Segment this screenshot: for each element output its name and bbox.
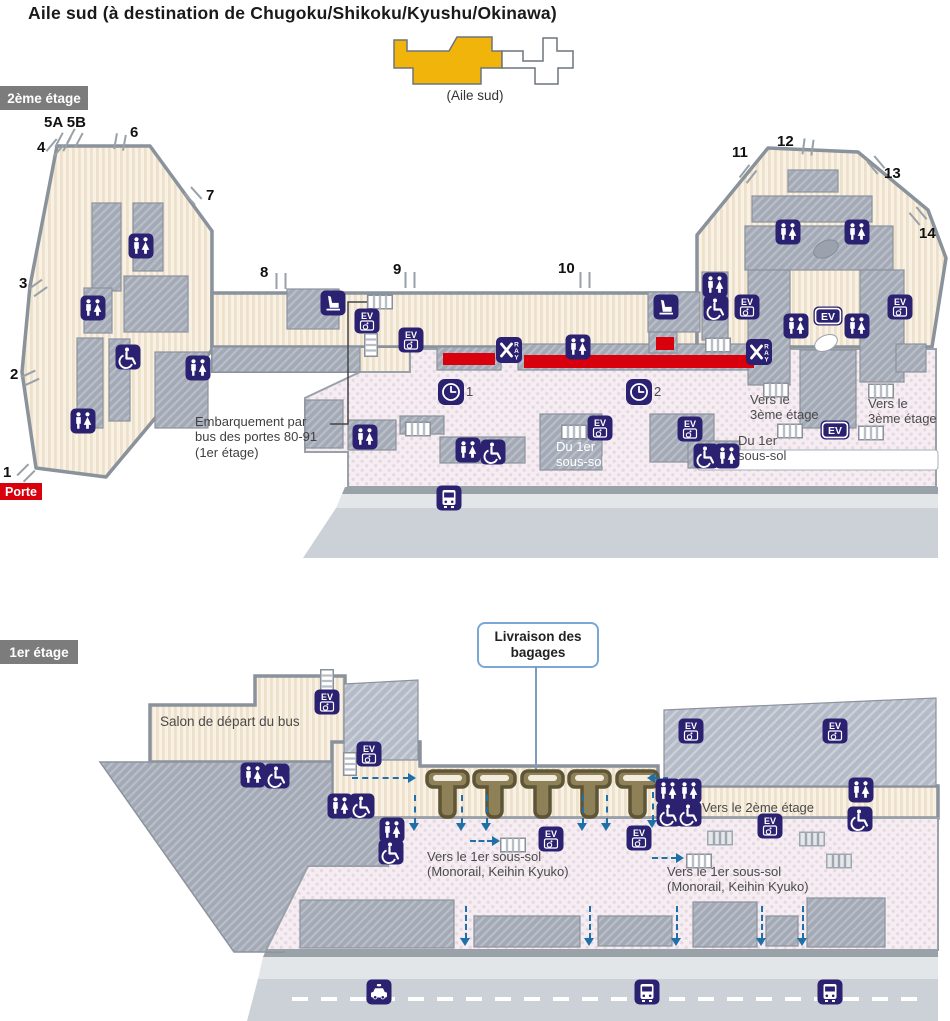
restroom-icon (715, 444, 740, 469)
clock-number: 2 (654, 384, 661, 399)
restroom-icon (456, 438, 481, 463)
flow-arrowhead (408, 773, 416, 783)
restroom-icon (81, 296, 106, 321)
gate-number: 11 (732, 144, 748, 161)
to-basement-label: Vers le 1er sous-sol (Monorail, Keihin K… (667, 864, 809, 895)
wheelchair-access-icon (116, 345, 141, 370)
from-basement-label: Du 1er sous-sol (556, 439, 604, 470)
floor2-curb (336, 494, 938, 508)
elevator-accessible-icon: EV (539, 827, 564, 852)
gate-number: 6 (130, 124, 138, 141)
minimap-south-wing-highlight (394, 37, 502, 84)
gate-number: 3 (19, 275, 27, 292)
baggage-carousel (472, 769, 517, 819)
waiting-area-icon (321, 291, 346, 316)
flow-arrow-down (606, 795, 608, 824)
stairs-icon (367, 295, 393, 310)
elevator-accessible-icon: EV (357, 742, 382, 767)
stairs-icon (763, 383, 789, 398)
wheelchair-access-icon (350, 794, 375, 819)
clock-number: 1 (466, 384, 473, 399)
taxi-stand-icon (367, 980, 392, 1005)
terminal-map-page: Aile sud (à destination de Chugoku/Shiko… (0, 0, 950, 1021)
flow-arrow-right (352, 777, 409, 779)
svg-text:EV: EV (321, 692, 333, 702)
flow-arrow-down (486, 795, 488, 824)
svg-text:EV: EV (405, 330, 417, 340)
page-title: Aile sud (à destination de Chugoku/Shiko… (28, 3, 557, 24)
wheelchair-access-icon (677, 802, 702, 827)
bus-stop-icon (818, 980, 843, 1005)
restroom-icon (241, 763, 266, 788)
baggage-carousel (520, 769, 565, 819)
wheelchair-access-icon (265, 764, 290, 789)
flow-arrow-down (676, 906, 678, 939)
stairs-icon (500, 838, 526, 853)
gate1-porte-tag: Porte (0, 483, 42, 500)
bus-stop-icon (437, 486, 462, 511)
bus-boarding-note: Embarquement par bus des portes 80-91 (1… (195, 414, 317, 460)
flow-arrow-down (652, 792, 654, 821)
elevator-accessible-icon: EV (355, 309, 380, 334)
svg-text:EV: EV (594, 418, 606, 428)
restroom-icon (566, 335, 591, 360)
stairs-icon (686, 854, 712, 869)
restroom-icon (71, 409, 96, 434)
gate-number: 7 (206, 187, 214, 204)
floor1-curb (258, 957, 938, 979)
gate-number: 2 (10, 366, 18, 383)
flow-arrowhead (409, 823, 419, 831)
elevator-accessible-icon: EV (758, 814, 783, 839)
flow-arrowhead (492, 836, 500, 846)
flow-arrowhead (601, 823, 611, 831)
elevator-accessible-icon: EV (679, 719, 704, 744)
customs-block (664, 698, 936, 786)
flow-arrowhead (756, 938, 766, 946)
restroom-icon (186, 356, 211, 381)
stairs-icon (364, 333, 378, 357)
gate-number: 4 (37, 139, 45, 156)
restroom-icon (353, 425, 378, 450)
stairs-icon (777, 424, 803, 439)
flow-arrow-down (414, 795, 416, 824)
jet-bridge (276, 273, 287, 289)
stairs-icon (858, 426, 884, 441)
bus-stop-icon (635, 980, 660, 1005)
flow-arrowhead (577, 823, 587, 831)
restroom-icon (784, 314, 809, 339)
svg-text:EV: EV (361, 311, 373, 321)
jet-bridge (801, 138, 814, 155)
restroom-icon (845, 314, 870, 339)
flow-arrow-down (761, 906, 763, 939)
security-xray-icon: RAY (496, 337, 522, 363)
floor2-map (22, 146, 946, 558)
gate-number: 8 (260, 264, 268, 281)
flow-arrow-down (465, 906, 467, 939)
svg-text:EV: EV (828, 425, 842, 437)
svg-text:Y: Y (764, 357, 769, 364)
to-basement-label: Vers le 1er sous-sol (Monorail, Keihin K… (427, 849, 569, 880)
flow-arrow-down (589, 906, 591, 939)
stairs-icon (826, 854, 852, 869)
stairs-icon (799, 832, 825, 847)
bus-lounge-label: Salon de départ du bus (160, 714, 300, 730)
to-3rd-floor-label: Vers le 3ème étage (868, 396, 937, 427)
restroom-icon (703, 273, 728, 298)
jet-bridge (405, 272, 416, 288)
clock-icon (626, 379, 652, 405)
gate-number: 1 (3, 464, 11, 481)
flow-arrowhead (584, 938, 594, 946)
flow-arrowhead (671, 938, 681, 946)
flow-arrowhead (797, 938, 807, 946)
gate-number: 10 (558, 260, 575, 277)
stairs-icon (561, 425, 587, 440)
jet-bridge (580, 272, 591, 288)
minimap-caption: (Aile sud) (425, 88, 525, 103)
svg-text:EV: EV (684, 419, 696, 429)
flow-arrowhead (647, 773, 655, 783)
gate-number: 5A 5B (44, 114, 86, 131)
elevator-accessible-icon: EV (627, 826, 652, 851)
elevator-accessible-icon: EV (823, 719, 848, 744)
stairs-icon (343, 752, 357, 776)
wheelchair-access-icon (704, 296, 729, 321)
elevator-accessible-icon: EV (735, 295, 760, 320)
terminal-minimap (394, 37, 573, 84)
elevator-accessible-icon: EV (588, 416, 613, 441)
security-xray-icon: RAY (746, 339, 772, 365)
waiting-area-icon (654, 295, 679, 320)
svg-text:EV: EV (741, 297, 753, 307)
svg-text:EV: EV (821, 311, 835, 323)
flow-arrow-right (652, 857, 677, 859)
flow-arrow-right (470, 840, 493, 842)
gate-number: 12 (777, 133, 794, 150)
flow-arrow-down (461, 795, 463, 824)
floor2-badge: 2ème étage (0, 86, 88, 110)
elevator-accessible-icon: EV (888, 295, 913, 320)
restroom-icon (849, 778, 874, 803)
stairs-icon (707, 831, 733, 846)
restroom-icon (845, 220, 870, 245)
svg-text:EV: EV (633, 828, 645, 838)
svg-text:EV: EV (829, 721, 841, 731)
flow-arrowhead (676, 853, 684, 863)
floor1-badge: 1er étage (0, 640, 78, 664)
clock-icon (438, 379, 464, 405)
flow-arrowhead (456, 823, 466, 831)
svg-text:EV: EV (363, 744, 375, 754)
elevator-accessible-icon: EV (399, 328, 424, 353)
stairs-icon (705, 338, 731, 353)
flow-arrow-down (802, 906, 804, 939)
flow-arrowhead (460, 938, 470, 946)
elevator-accessible-icon: EV (315, 690, 340, 715)
gate-number: 9 (393, 261, 401, 278)
restroom-icon (677, 779, 702, 804)
gate-number: 14 (919, 225, 936, 242)
minimap-terminal-outline (502, 38, 573, 84)
baggage-carousel (425, 769, 470, 819)
restroom-icon (129, 234, 154, 259)
svg-text:EV: EV (545, 829, 557, 839)
stairs-icon (405, 422, 431, 437)
svg-text:EV: EV (685, 721, 697, 731)
wheelchair-access-icon (481, 440, 506, 465)
elevator-accessible-icon: EV (678, 417, 703, 442)
svg-text:Y: Y (514, 355, 519, 362)
svg-text:EV: EV (764, 816, 776, 826)
gate-number: 13 (884, 165, 901, 182)
floor2-road (303, 508, 938, 558)
floor2-corridor (212, 293, 697, 347)
flow-arrowhead (481, 823, 491, 831)
restroom-icon (776, 220, 801, 245)
wheelchair-access-icon (848, 807, 873, 832)
elevator-icon: EV (820, 420, 850, 440)
flow-arrow-down (582, 795, 584, 824)
callout-leader-line (535, 666, 537, 772)
svg-text:EV: EV (894, 297, 906, 307)
wheelchair-access-icon (379, 840, 404, 865)
baggage-claim-callout: Livraison des bagages (477, 622, 599, 668)
elevator-icon: EV (813, 306, 843, 326)
stairs-icon (868, 384, 894, 399)
